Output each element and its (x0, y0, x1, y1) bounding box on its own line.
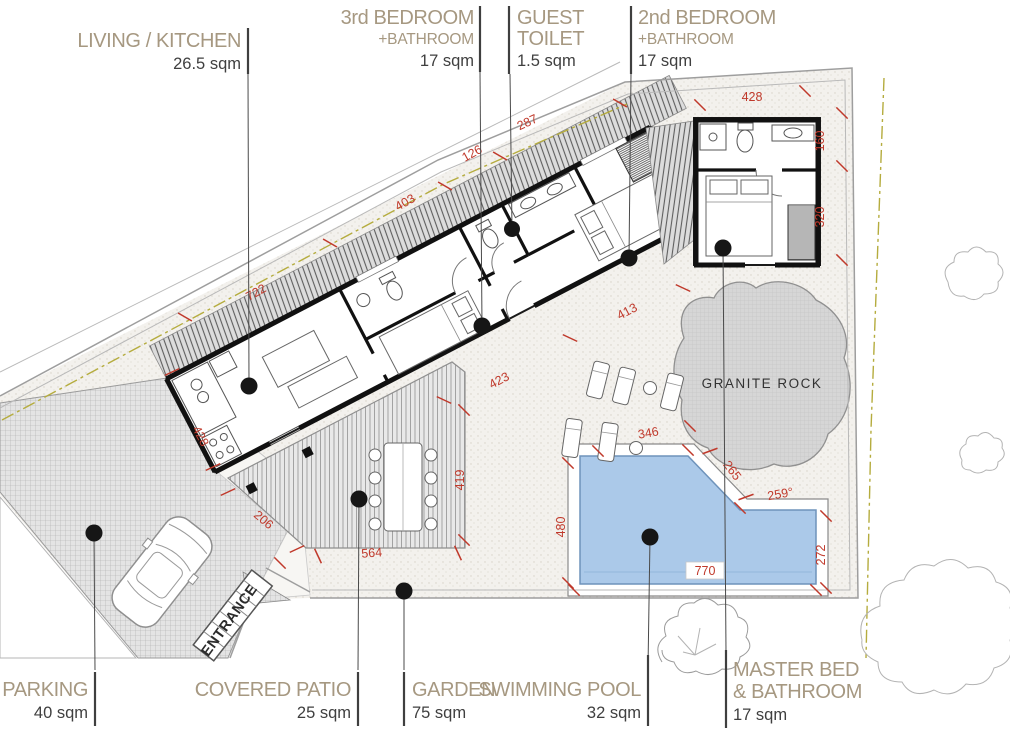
room-label-covered-patio: COVERED PATIO 25 sqm (195, 679, 351, 722)
leader-dot-master (715, 240, 732, 257)
tree (861, 559, 1010, 693)
room-area: 32 sqm (587, 704, 641, 722)
room-title: LIVING / KITCHEN (77, 30, 241, 52)
leader-dot-bedroom2 (621, 250, 638, 267)
floor-plan-canvas: GRANITE ROCK (0, 0, 1010, 733)
dimension-label: 160 (813, 131, 827, 152)
leader-dot-bedroom3 (474, 318, 491, 335)
room-subtitle: +BATHROOM (378, 31, 474, 48)
leader-dot-pool (642, 529, 659, 546)
room-subtitle: & BATHROOM (733, 681, 862, 703)
room-label-living-kitchen: LIVING / KITCHEN 26.5 sqm (77, 30, 241, 73)
dimension-label: 480 (554, 517, 568, 538)
room-area: 17 sqm (733, 706, 787, 724)
room-label-bedroom2: 2nd BEDROOM +BATHROOM 17 sqm (638, 7, 776, 70)
room-area: 40 sqm (34, 704, 88, 722)
floor-plan-page: GRANITE ROCK (0, 0, 1010, 733)
room-title: GUEST (517, 7, 584, 29)
room-label-swimming-pool: SWIMMING POOL 32 sqm (478, 679, 641, 722)
room-title: 2nd BEDROOM (638, 7, 776, 29)
granite-rock: GRANITE ROCK (674, 282, 850, 470)
room-labels-bottom: PARKING 40 sqm COVERED PATIO 25 sqm GARD… (2, 650, 862, 728)
tree (945, 247, 1003, 300)
dimension-label: 320 (813, 207, 827, 228)
side-table (644, 382, 657, 395)
master-closet (788, 205, 815, 260)
room-area: 75 sqm (412, 704, 466, 722)
room-title: PARKING (2, 679, 88, 701)
room-title: 3rd BEDROOM (341, 7, 474, 29)
dimension-label: 428 (742, 90, 763, 104)
room-area: 1.5 sqm (517, 52, 576, 70)
room-label-guest-toilet: GUEST TOILET 1.5 sqm (517, 7, 584, 70)
room-area: 17 sqm (638, 52, 692, 70)
room-title: MASTER BED (733, 659, 859, 681)
dimension-label: 770 (695, 564, 716, 578)
room-area: 26.5 sqm (173, 55, 241, 73)
room-subtitle: +BATHROOM (638, 31, 734, 48)
room-title: SWIMMING POOL (478, 679, 641, 701)
granite-rock-label: GRANITE ROCK (702, 376, 823, 391)
room-label-parking: PARKING 40 sqm (2, 679, 88, 722)
room-labels-top: LIVING / KITCHEN 26.5 sqm 3rd BEDROOM +B… (77, 6, 776, 74)
room-title: COVERED PATIO (195, 679, 351, 701)
tree (960, 432, 1005, 473)
leader-dot-guest-toilet (504, 221, 520, 237)
room-area: 17 sqm (420, 52, 474, 70)
dimension-label: 272 (814, 545, 828, 566)
room-label-bedroom3: 3rd BEDROOM +BATHROOM 17 sqm (341, 7, 474, 70)
leader-dot-garden (396, 583, 413, 600)
room-area: 25 sqm (297, 704, 351, 722)
master-building (694, 118, 820, 265)
leader-dot-parking (86, 525, 103, 542)
dimension-label: 564 (361, 545, 383, 560)
room-subtitle: TOILET (517, 28, 584, 50)
leader-dot-patio (351, 491, 368, 508)
dimension-label: 419 (453, 470, 467, 491)
leader-dot-living-kitchen (241, 378, 258, 395)
room-label-master: MASTER BED & BATHROOM 17 sqm (733, 659, 862, 724)
side-table (630, 442, 643, 455)
